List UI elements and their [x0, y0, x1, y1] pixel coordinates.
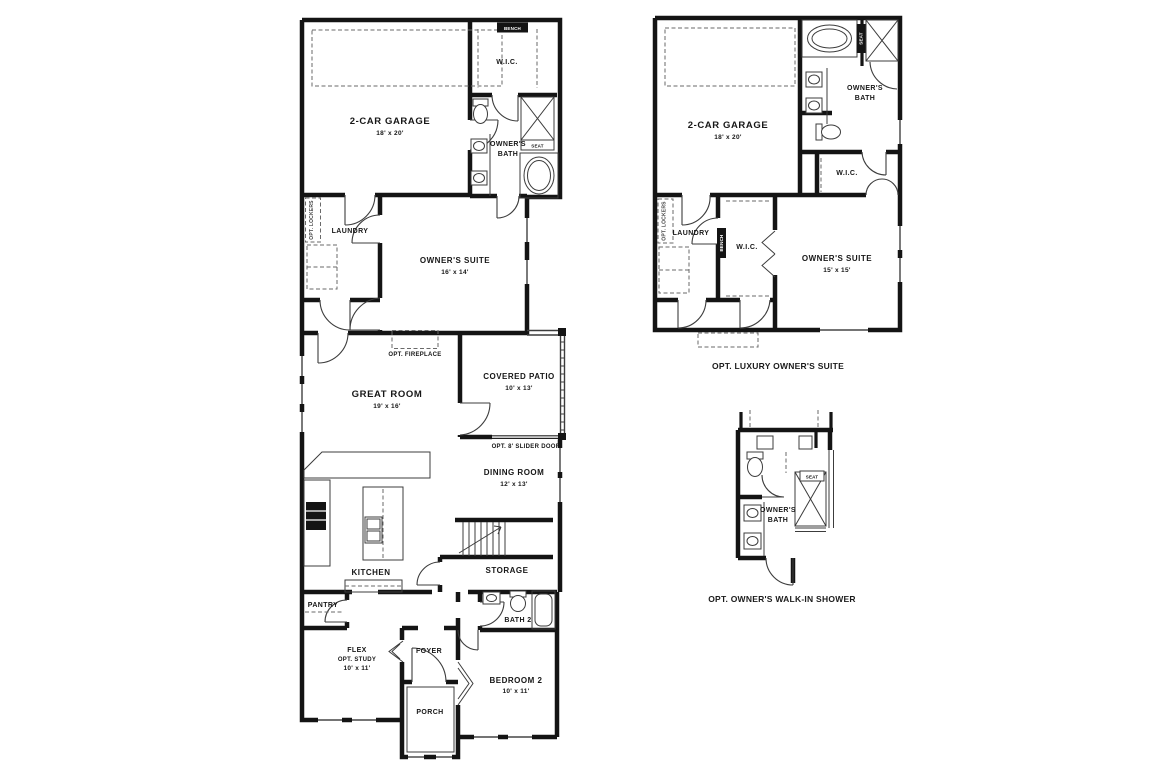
flex-dims: 10' x 11': [343, 665, 370, 672]
toilet-icon: [747, 452, 763, 477]
floorplan-sheet: 2-CAR GARAGE 18' x 20' W.I.C. BENCH OWNE…: [0, 0, 1152, 768]
seat-label: SEAT: [859, 32, 864, 45]
garage-dims: 18' x 20': [714, 134, 742, 141]
foyer-label: FOYER: [416, 648, 442, 655]
opt-fireplace-label: OPT. FIREPLACE: [388, 352, 441, 358]
garage-parking-outline: [665, 28, 795, 86]
patio-screen: [527, 328, 566, 440]
opt-luxury-owners-suite-plan: 2-CAR GARAGE 18' x 20' OWNER'S BATH SEAT…: [655, 18, 903, 371]
owners-suite-label: OWNER'S SUITE: [420, 256, 490, 265]
laundry-label: LAUNDRY: [673, 230, 710, 237]
owners-bath-label-2: BATH: [768, 517, 789, 524]
pantry-label: PANTRY: [308, 602, 338, 609]
dining-room-dims: 12' x 13': [500, 481, 528, 488]
great-room-dims: 19' x 16': [373, 403, 401, 410]
bath2-label: BATH 2: [504, 617, 531, 624]
opt-lockers-label: OPT. LOCKERS: [662, 201, 668, 241]
wall-oven-icon: [306, 502, 326, 530]
opt-slider-door-label: OPT. 8' SLIDER DOOR: [492, 444, 561, 450]
dining-room-label: DINING ROOM: [484, 468, 545, 477]
kitchen-label: KITCHEN: [351, 568, 390, 577]
toilet-icon: [510, 591, 526, 612]
great-room-label: GREAT ROOM: [352, 389, 423, 400]
sink-icon: [744, 505, 761, 521]
owners-suite-label: OWNER'S SUITE: [802, 254, 872, 263]
shower-icon: [866, 20, 898, 61]
kitchen-island: [363, 487, 403, 560]
walk-in-shower-icon: [795, 471, 826, 532]
owners-bath-label-2: BATH: [855, 95, 876, 102]
seat-label: SEAT: [531, 143, 544, 148]
laundry-label: LAUNDRY: [332, 228, 369, 235]
flex-alt-label: OPT. STUDY: [338, 657, 376, 663]
main-labels: 2-CAR GARAGE 18' x 20' W.I.C. BENCH OWNE…: [308, 26, 561, 716]
flex-label: FLEX: [347, 647, 367, 654]
owners-suite-dims: 16' x 14': [441, 269, 469, 276]
garage-dims: 18' x 20': [376, 130, 404, 137]
owners-bath-label-1: OWNER'S: [490, 141, 526, 148]
bedroom2-dims: 10' x 11': [502, 688, 529, 695]
covered-patio-label: COVERED PATIO: [483, 372, 555, 381]
luxury-fixtures: [717, 20, 898, 258]
niche: [757, 436, 773, 449]
sink-icon: [744, 533, 761, 549]
bench-label: BENCH: [504, 26, 521, 31]
opt-lockers-label: OPT. LOCKERS: [309, 200, 315, 240]
opt-fireplace-outline: [698, 333, 758, 347]
porch-slab: [407, 687, 454, 752]
sink-icon: [471, 171, 487, 185]
owners-bath-label-1: OWNER'S: [760, 507, 796, 514]
garage-label: 2-CAR GARAGE: [688, 120, 769, 131]
wic-suite-label: W.I.C.: [736, 244, 757, 251]
owners-bath-label-2: BATH: [498, 151, 519, 158]
garage-label: 2-CAR GARAGE: [350, 116, 431, 127]
owners-bath-label-1: OWNER'S: [847, 85, 883, 92]
wic-label: W.I.C.: [496, 59, 517, 66]
wic-label: W.I.C.: [836, 170, 857, 177]
luxury-caption: OPT. LUXURY OWNER'S SUITE: [712, 361, 844, 371]
main-floor-plan: 2-CAR GARAGE 18' x 20' W.I.C. BENCH OWNE…: [300, 20, 567, 760]
tub-icon: [532, 591, 555, 629]
walk-in-shower-caption: OPT. OWNER'S WALK-IN SHOWER: [708, 594, 856, 604]
garage-parking-outline: [312, 30, 502, 86]
storage-label: STORAGE: [486, 566, 529, 575]
owners-suite-dims: 15' x 15': [823, 267, 851, 274]
toilet-icon: [473, 99, 488, 124]
niche: [799, 436, 812, 449]
tub-icon: [802, 20, 857, 57]
sink-icon: [471, 139, 487, 153]
sink-icon: [806, 98, 822, 113]
bench-label: BENCH: [719, 234, 724, 251]
tub-icon: [520, 153, 558, 198]
stairs: [459, 522, 505, 556]
floorplan-drawing: 2-CAR GARAGE 18' x 20' W.I.C. BENCH OWNE…: [0, 0, 1152, 768]
porch-label: PORCH: [416, 709, 443, 716]
luxury-labels: 2-CAR GARAGE 18' x 20' OWNER'S BATH SEAT…: [662, 32, 883, 371]
main-doors: [318, 95, 519, 705]
sink-icon: [483, 592, 500, 604]
toilet-icon: [816, 124, 841, 140]
opt-walk-in-shower-plan: SEAT OWNER'S BATH OPT. OWNER'S WALK-IN S…: [708, 410, 856, 604]
sink-icon: [806, 72, 822, 87]
bedroom2-label: BEDROOM 2: [490, 676, 543, 685]
covered-patio-dims: 10' x 13': [505, 385, 533, 392]
seat-label: SEAT: [806, 474, 819, 479]
